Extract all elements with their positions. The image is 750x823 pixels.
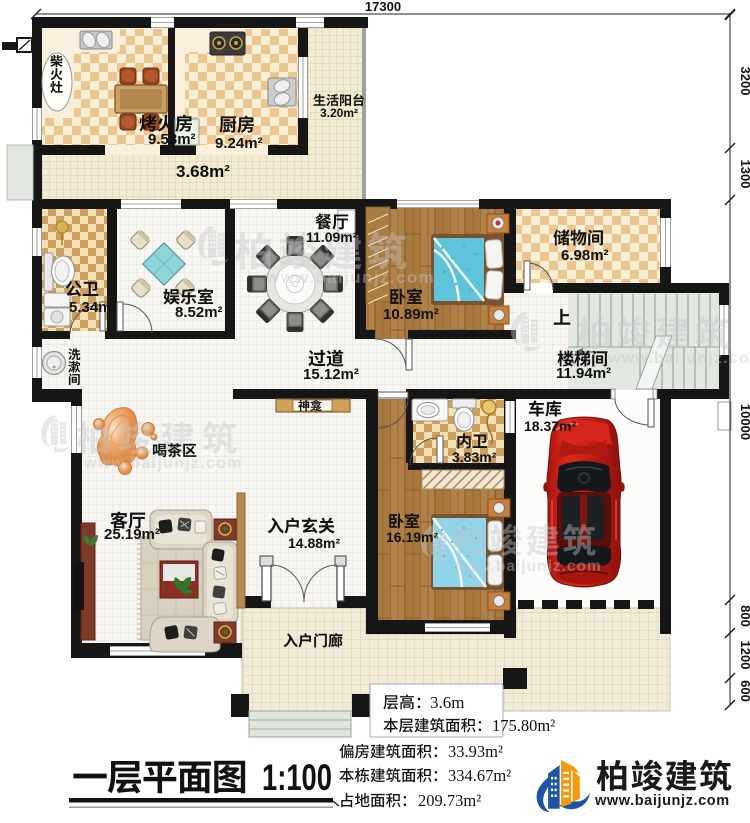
svg-text:18.37m²: 18.37m² (524, 418, 576, 434)
svg-text:1300: 1300 (738, 160, 750, 189)
svg-text:334.67m²: 334.67m² (448, 766, 511, 785)
svg-text:www.baijunjz.com: www.baijunjz.com (451, 558, 602, 575)
svg-text:3.68m²: 3.68m² (176, 162, 230, 181)
svg-text:3.20m²: 3.20m² (320, 106, 358, 120)
svg-text:17300: 17300 (365, 0, 401, 14)
svg-text:9.53m²: 9.53m² (148, 131, 196, 148)
svg-text:8.52m²: 8.52m² (175, 304, 223, 321)
svg-text:15.12m²: 15.12m² (303, 366, 359, 383)
svg-text:5.34m²: 5.34m² (69, 299, 117, 316)
svg-text:600: 600 (738, 680, 750, 702)
svg-text:175.80m²: 175.80m² (492, 716, 555, 735)
svg-text:www.baijunjz.com: www.baijunjz.com (265, 268, 435, 287)
svg-text:10.89m²: 10.89m² (383, 306, 439, 323)
svg-text:11.09m²: 11.09m² (306, 229, 358, 245)
svg-text:14.88m²: 14.88m² (288, 535, 340, 551)
svg-text:16.19m²: 16.19m² (386, 529, 438, 545)
svg-text:33.93m²: 33.93m² (448, 742, 503, 761)
svg-text:25.19m²: 25.19m² (104, 526, 160, 543)
svg-text:1200: 1200 (738, 641, 750, 670)
svg-text:3.83m²: 3.83m² (452, 449, 497, 465)
svg-text:6.98m²: 6.98m² (561, 247, 609, 264)
svg-text:3200: 3200 (738, 67, 750, 96)
svg-text:1:100: 1:100 (262, 757, 332, 798)
svg-text:www.baijunjz.com: www.baijunjz.com (607, 350, 750, 367)
svg-text:209.73m²: 209.73m² (418, 791, 481, 810)
svg-text:800: 800 (738, 605, 750, 627)
svg-text:9.24m²: 9.24m² (215, 135, 263, 152)
svg-text:11.94m²: 11.94m² (556, 365, 611, 382)
svg-text:10000: 10000 (738, 404, 750, 440)
svg-text:www.baijunjz.com: www.baijunjz.com (594, 793, 730, 809)
svg-text:www.baijunjz.com: www.baijunjz.com (83, 455, 243, 472)
svg-text:3.6m: 3.6m (430, 693, 464, 712)
